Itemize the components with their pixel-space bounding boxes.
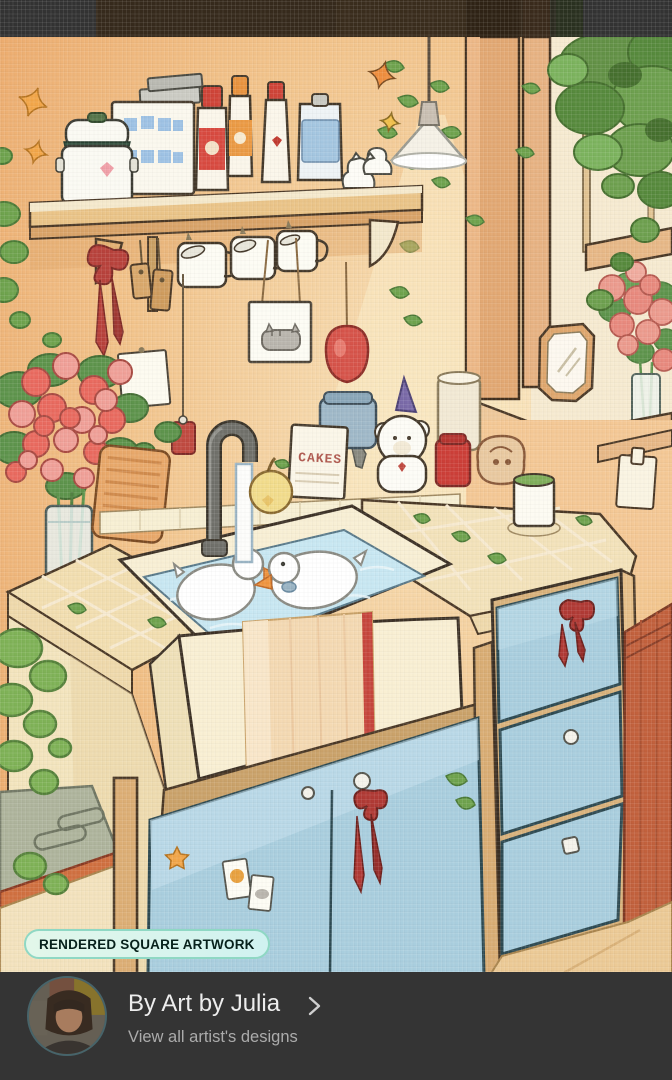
svg-text:CAKES: CAKES: [298, 450, 343, 467]
